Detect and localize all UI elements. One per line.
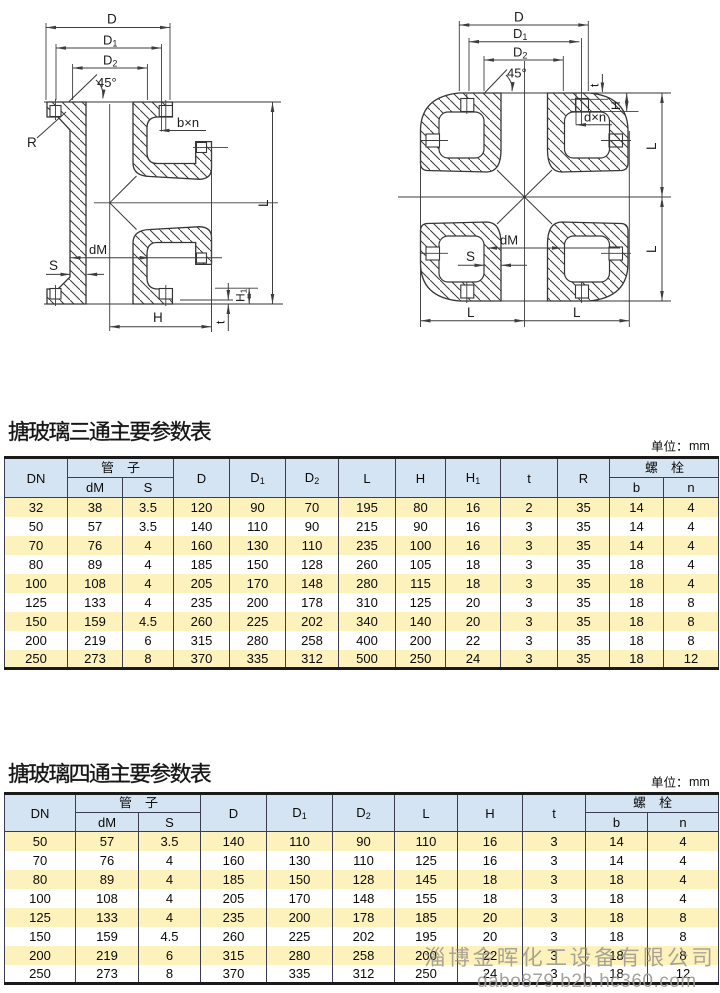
svg-text:D: D bbox=[514, 10, 524, 25]
svg-text:b×n: b×n bbox=[177, 115, 199, 130]
svg-text:D2: D2 bbox=[513, 45, 527, 61]
svg-text:D1: D1 bbox=[103, 33, 117, 49]
svg-text:L: L bbox=[644, 142, 659, 150]
svg-text:L: L bbox=[467, 305, 475, 320]
svg-text:dM: dM bbox=[89, 242, 107, 257]
svg-text:45°: 45° bbox=[97, 75, 117, 90]
svg-text:L: L bbox=[573, 305, 581, 320]
svg-text:D2: D2 bbox=[103, 53, 117, 69]
svg-text:L: L bbox=[256, 199, 271, 207]
svg-text:H: H bbox=[609, 101, 623, 110]
svg-text:H1: H1 bbox=[234, 288, 249, 302]
svg-text:H: H bbox=[153, 310, 163, 325]
svg-text:S: S bbox=[49, 258, 58, 273]
svg-text:R: R bbox=[27, 135, 37, 150]
svg-text:L: L bbox=[644, 245, 659, 253]
svg-text:t: t bbox=[214, 320, 228, 324]
svg-text:d×n: d×n bbox=[584, 110, 606, 125]
svg-text:dM: dM bbox=[500, 233, 518, 248]
svg-text:S: S bbox=[466, 249, 475, 264]
svg-text:D: D bbox=[107, 12, 117, 27]
svg-text:t: t bbox=[588, 83, 602, 87]
svg-text:45°: 45° bbox=[507, 66, 527, 81]
svg-text:D1: D1 bbox=[513, 26, 527, 42]
